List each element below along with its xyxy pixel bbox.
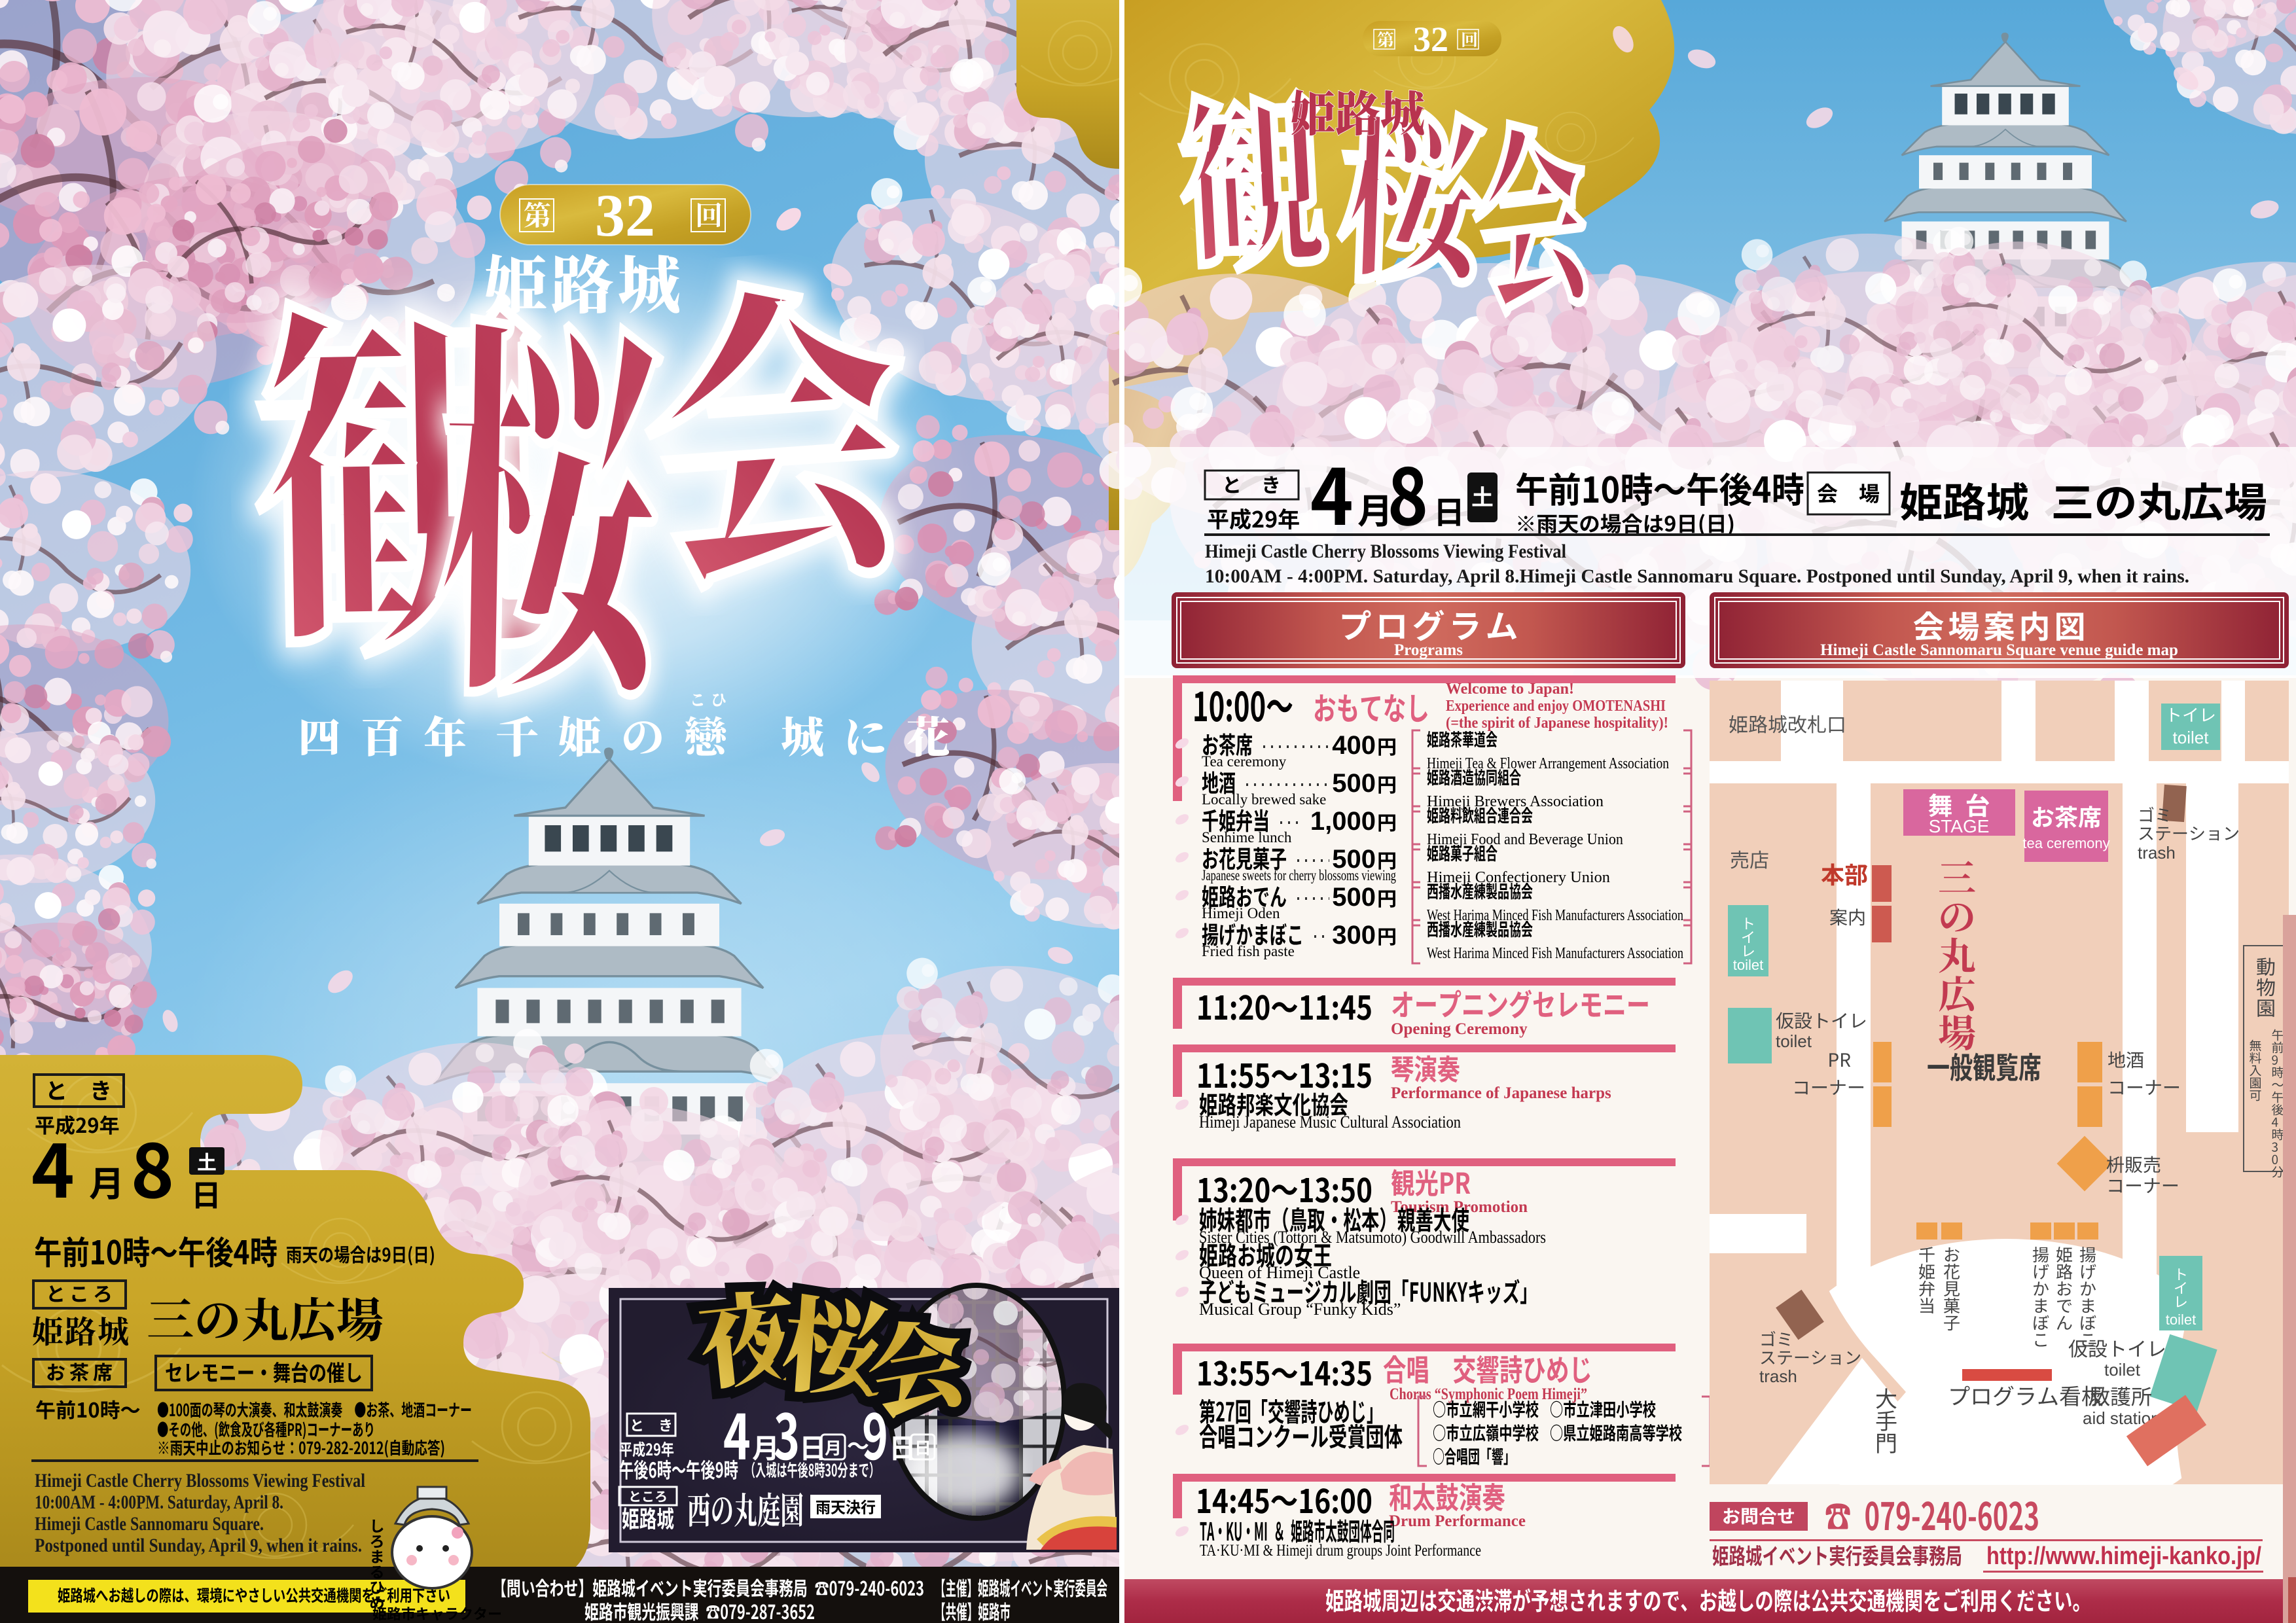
svg-text:STAGE: STAGE [1929, 816, 1990, 836]
svg-text:Experience and enjoy OMOTENASH: Experience and enjoy OMOTENASHI [1446, 698, 1666, 715]
svg-text:Drum Performance: Drum Performance [1389, 1512, 1526, 1530]
svg-text:10:00AM - 4:00PM. Saturday, Ap: 10:00AM - 4:00PM. Saturday, April 8. [35, 1491, 283, 1513]
svg-text:Himeji Oden: Himeji Oden [1202, 905, 1280, 921]
svg-text:trash: trash [2138, 843, 2176, 863]
svg-text:Himeji Tea & Flower Arrangemen: Himeji Tea & Flower Arrangement Associat… [1427, 755, 1669, 772]
svg-text:Musical Group “Funky Kids”: Musical Group “Funky Kids” [1199, 1300, 1401, 1319]
svg-text:Himeji Castle Cherry Blossoms: Himeji Castle Cherry Blossoms Viewing Fe… [1205, 541, 1566, 562]
svg-text:400: 400 [1332, 731, 1376, 760]
svg-text:toilet: toilet [2173, 728, 2210, 747]
svg-text:Performance of Japanese harps: Performance of Japanese harps [1391, 1084, 1611, 1102]
svg-text:West Harima Minced Fish Manufa: West Harima Minced Fish Manufacturers As… [1427, 945, 1683, 962]
svg-text:Fried fish paste: Fried fish paste [1202, 943, 1295, 959]
svg-text:(=the spirit of Japanese hospi: (=the spirit of Japanese hospitality)! [1446, 715, 1668, 732]
svg-text:Programs: Programs [1394, 641, 1463, 659]
svg-text:http://www.himeji-kanko.jp/: http://www.himeji-kanko.jp/ [1986, 1543, 2261, 1570]
svg-text:32: 32 [1413, 20, 1448, 59]
svg-text:10:00AM - 4:00PM. Saturday, Ap: 10:00AM - 4:00PM. Saturday, April 8.Hime… [1205, 565, 2189, 587]
svg-text:Japanese sweets for cherry blo: Japanese sweets for cherry blossoms view… [1202, 867, 1396, 883]
svg-text:Himeji Japanese Music Cultural: Himeji Japanese Music Cultural Associati… [1199, 1113, 1461, 1132]
svg-text:300: 300 [1332, 921, 1376, 950]
svg-text:Locally brewed sake: Locally brewed sake [1202, 791, 1326, 808]
svg-text:Sister Cities (Tottori & Matsu: Sister Cities (Tottori & Matsumoto) Good… [1199, 1228, 1546, 1247]
svg-text:Senhime lunch: Senhime lunch [1202, 829, 1292, 846]
svg-text:500: 500 [1332, 883, 1376, 912]
svg-text:Postponed until Sunday, April: Postponed until Sunday, April 9, when it… [35, 1535, 362, 1556]
svg-text:1,000: 1,000 [1310, 807, 1376, 836]
svg-text:tea ceremony: tea ceremony [2022, 835, 2109, 851]
svg-text:toilet: toilet [1776, 1031, 1812, 1051]
svg-text:West Harima Minced Fish Manufa: West Harima Minced Fish Manufacturers As… [1427, 907, 1683, 924]
svg-text:TA·KU·MI & Himeji drum groups: TA·KU·MI & Himeji drum groups Joint Perf… [1200, 1542, 1481, 1560]
svg-text:Queen of Himeji Castle: Queen of Himeji Castle [1199, 1263, 1360, 1282]
svg-text:Himeji Food and Beverage Union: Himeji Food and Beverage Union [1427, 831, 1623, 848]
svg-text:toilet: toilet [2166, 1311, 2196, 1328]
svg-text:Welcome to Japan!: Welcome to Japan! [1446, 681, 1574, 698]
svg-text:Himeji Confectionery Union: Himeji Confectionery Union [1427, 869, 1610, 886]
svg-text:Himeji Castle Cherry Blossoms: Himeji Castle Cherry Blossoms Viewing Fe… [35, 1470, 365, 1491]
svg-text:toilet: toilet [2104, 1360, 2141, 1380]
svg-text:Tea ceremony: Tea ceremony [1202, 753, 1287, 770]
svg-text:Opening Ceremony: Opening Ceremony [1391, 1020, 1528, 1038]
svg-text:toilet: toilet [1733, 957, 1763, 973]
svg-text:trash: trash [1759, 1366, 1797, 1386]
svg-text:32: 32 [595, 182, 655, 249]
svg-text:Himeji Castle Sannomaru Square: Himeji Castle Sannomaru Square venue gui… [1820, 641, 2178, 659]
svg-text:500: 500 [1332, 769, 1376, 798]
svg-text:Himeji Castle Sannomaru Square: Himeji Castle Sannomaru Square. [35, 1513, 264, 1535]
